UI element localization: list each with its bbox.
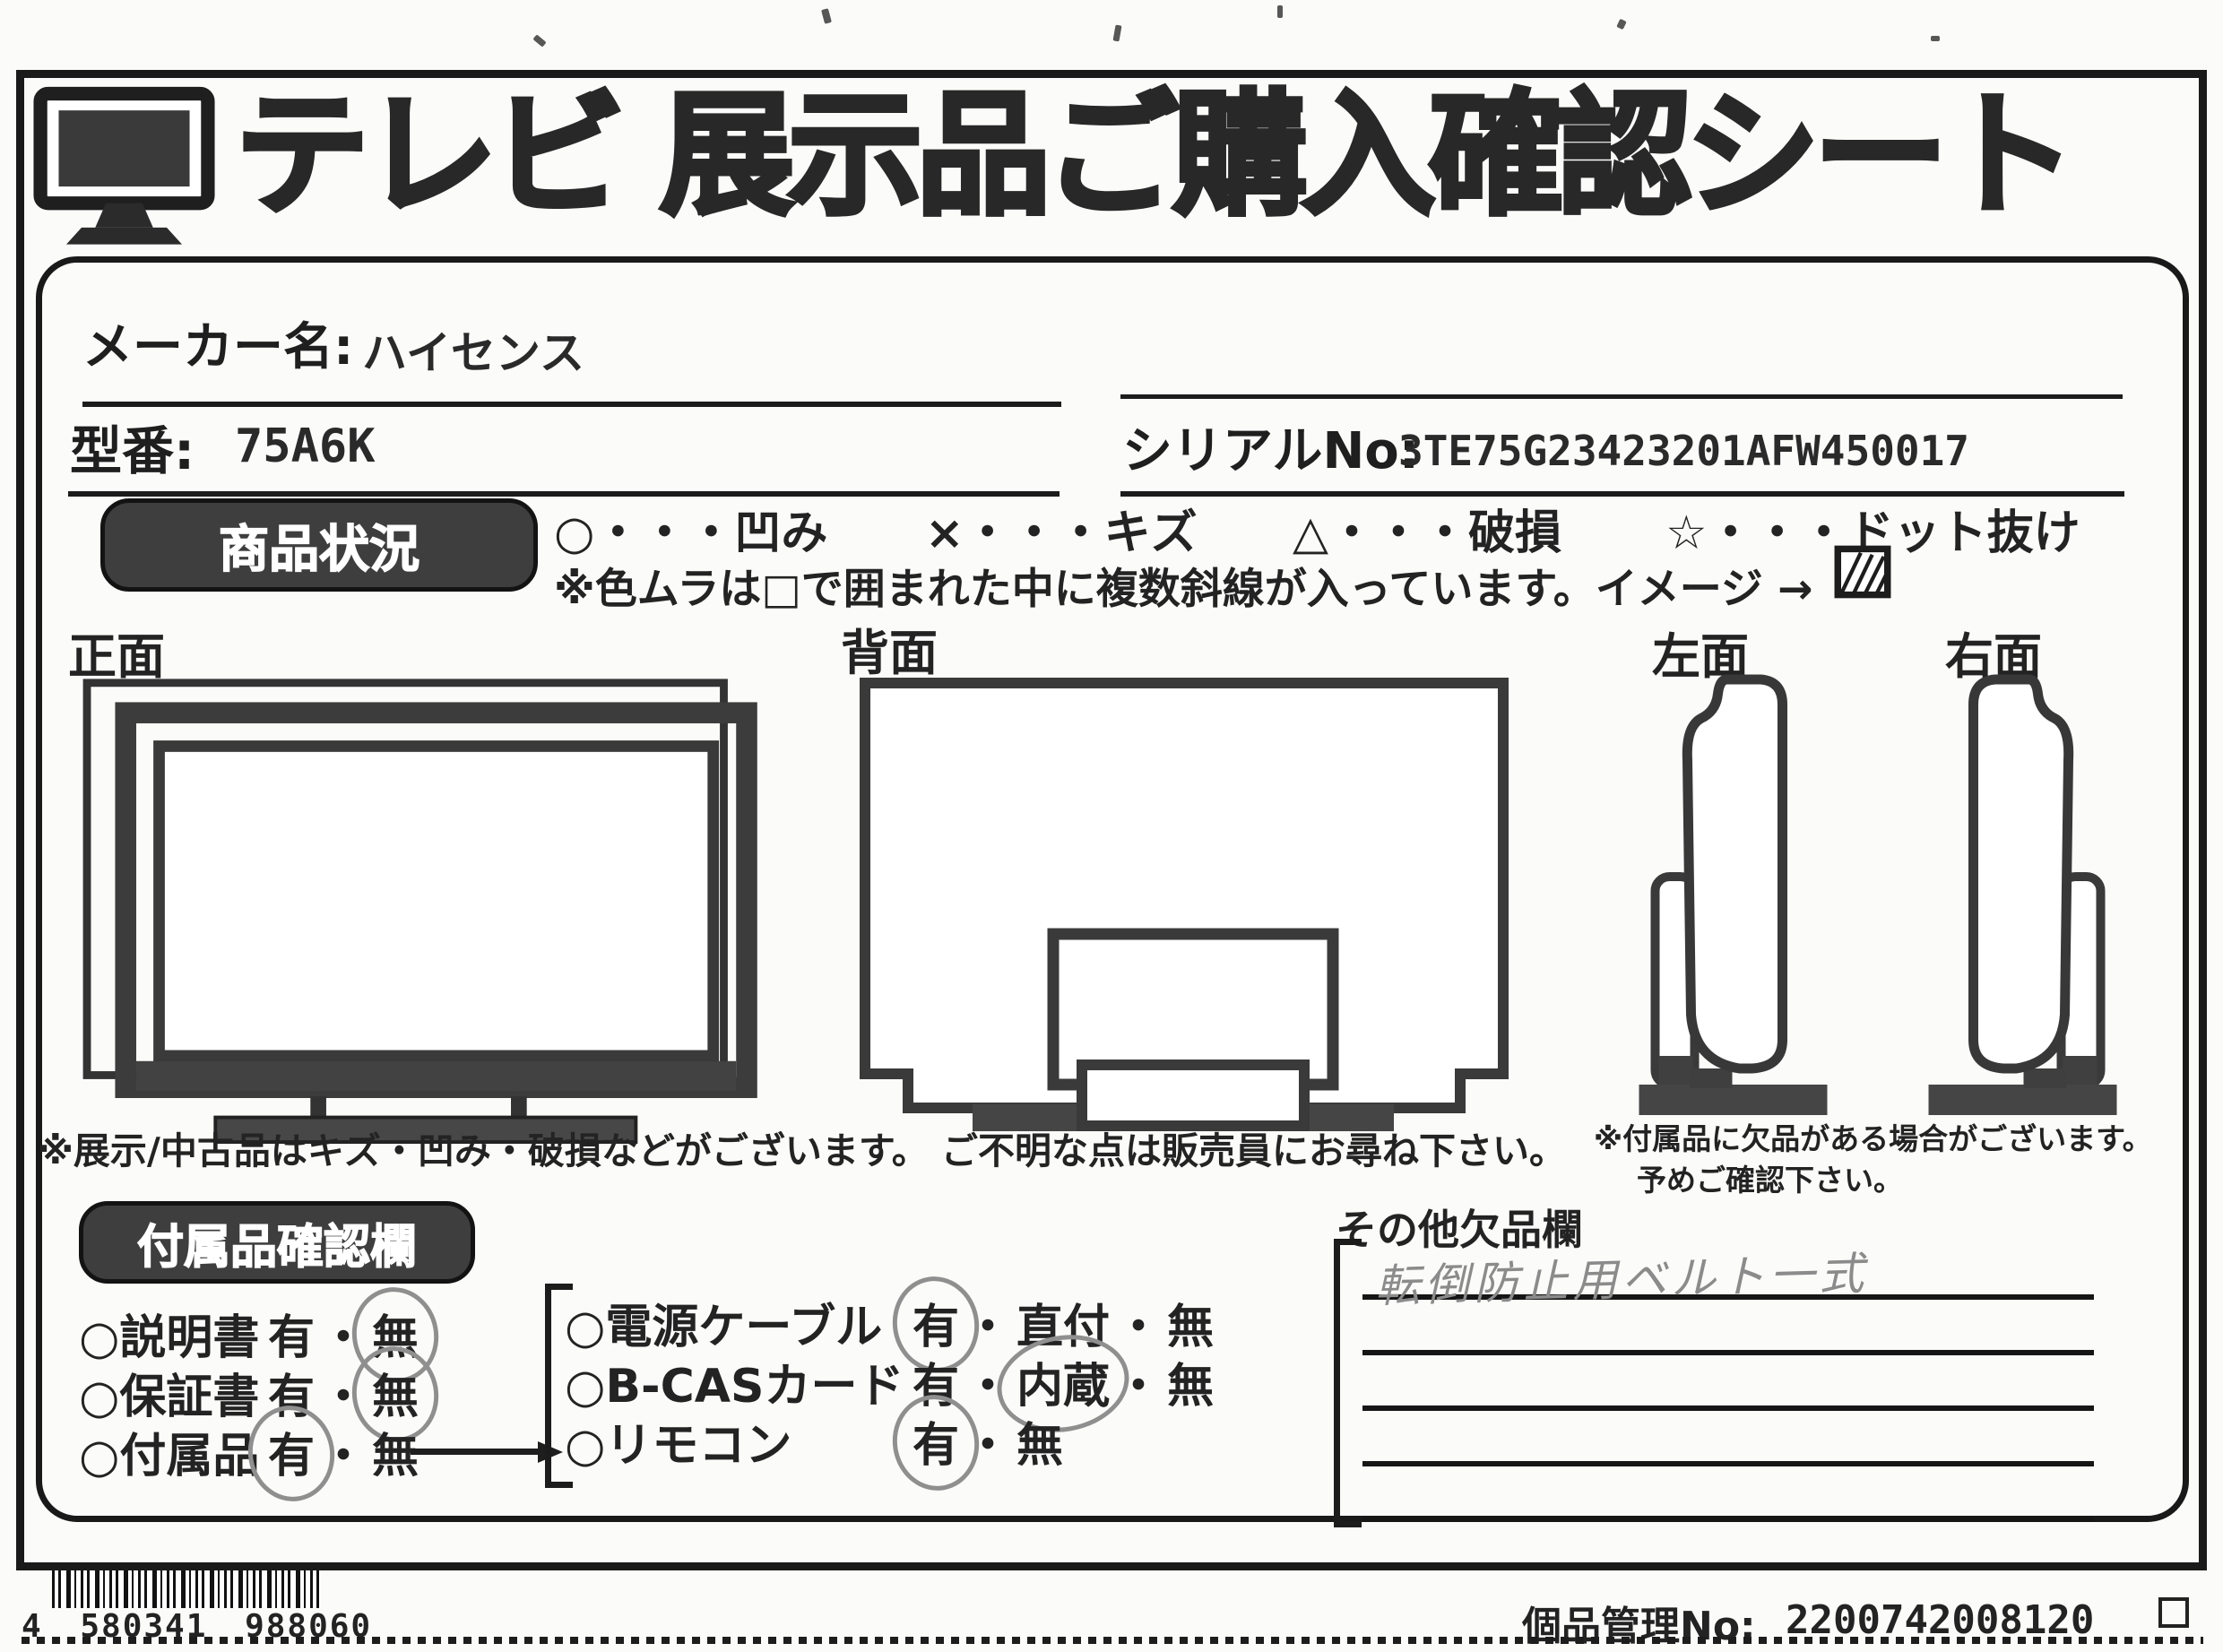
legend-dent: ○・・・凹み	[554, 495, 827, 562]
missing-ruled-line	[1362, 1461, 2094, 1466]
management-checkbox	[2158, 1597, 2189, 1628]
dust-speck	[1931, 36, 1940, 41]
accessory-options: 有 ・ 無	[263, 1416, 424, 1487]
legend-scratch: ×・・・キズ	[925, 495, 1198, 562]
option-ari: 有	[263, 1416, 320, 1487]
accessory-name: ○リモコン	[565, 1407, 907, 1475]
maker-value: ハイセンス	[362, 317, 584, 382]
dust-speck	[532, 34, 546, 47]
page-title: テレビ 展示品ご購入確認シート	[235, 86, 2070, 228]
maker-label: メーカー名:	[82, 307, 353, 379]
legend-damage: △・・・破損	[1293, 495, 1561, 562]
tv-right-side-diagram	[1906, 669, 2121, 1121]
accessory-note-line1: ※付属品に欠品がある場合がございます。	[1594, 1115, 2152, 1158]
dust-speck	[1112, 25, 1121, 42]
dust-speck	[1277, 5, 1283, 18]
perforation-line	[22, 1637, 2203, 1644]
option-nashi: 無	[1011, 1405, 1068, 1476]
accessory-note-line2: 予めご確認下さい。	[1637, 1156, 1903, 1199]
maker-underline-right	[1120, 394, 2123, 399]
missing-ruled-line	[1362, 1517, 2094, 1522]
tv-icon	[32, 86, 216, 247]
accessory-name: ○付属品	[79, 1418, 263, 1485]
dust-speck	[821, 8, 832, 24]
maker-underline	[82, 402, 1061, 407]
confirmation-sheet: テレビ 展示品ご購入確認シート メーカー名: ハイセンス 型番: 75A6K シ…	[0, 0, 2223, 1652]
accessory-row-remote: ○リモコン 有 ・ 無	[565, 1405, 1068, 1476]
dust-speck	[1616, 19, 1626, 30]
model-value: 75A6K	[235, 419, 376, 473]
serial-label: シリアルNo:	[1122, 411, 1419, 483]
exhibit-note: ※展示/中古品はキズ・凹み・破損などがございます。 ご不明な点は販売員にお尋ね下…	[38, 1120, 1566, 1174]
tv-front-diagram	[72, 674, 764, 1145]
missing-ruled-line	[1362, 1350, 2094, 1355]
tv-left-side-diagram	[1635, 669, 1850, 1121]
accessories-section-label: 付属品確認欄	[79, 1201, 475, 1284]
accessory-options: 有 ・ 無	[907, 1405, 1068, 1476]
color-unevenness-note: ※色ムラは□で囲まれた中に複数斜線が入っています。イメージ →	[554, 554, 1813, 616]
condition-section-label: 商品状況	[100, 498, 538, 592]
option-ari: 有	[907, 1405, 964, 1476]
accessories-arrow	[411, 1449, 541, 1455]
missing-ruled-line	[1362, 1405, 2094, 1411]
hatch-sample-icon	[1834, 545, 1891, 599]
accessory-row-accessories: ○付属品 有 ・ 無	[79, 1416, 424, 1487]
missing-bracket	[1334, 1239, 1363, 1527]
tv-back-diagram	[838, 669, 1528, 1137]
serial-value: 3TE75G23423201AFW450017	[1398, 427, 1969, 475]
option-nashi: 無	[1162, 1346, 1219, 1417]
missing-handwritten-entry: 転倒防止用ベルト一式	[1374, 1238, 1869, 1315]
model-label: 型番:	[70, 409, 195, 484]
